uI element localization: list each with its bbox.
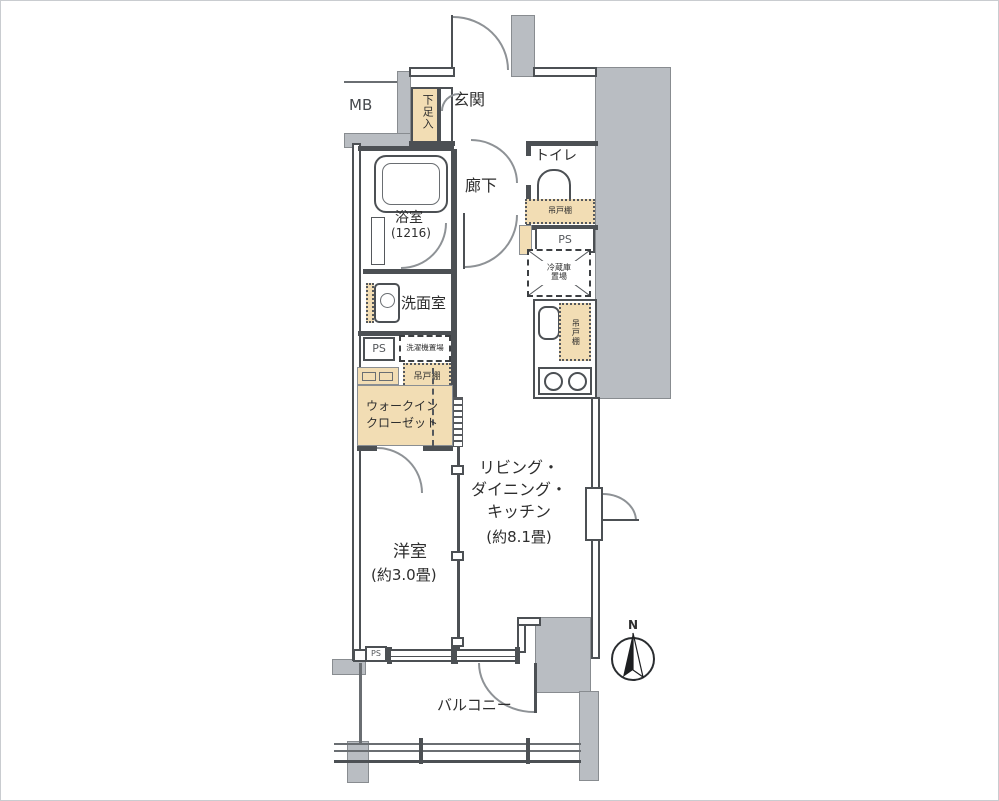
- ldk-size-label: (約8.1畳): [471, 529, 567, 546]
- toilet-shelf-box: 吊戸棚: [525, 199, 595, 224]
- wall-bath-top: [358, 146, 454, 151]
- compass-needle-icon: [607, 619, 659, 685]
- wic-label-line1: ウォークイン: [366, 398, 438, 415]
- balcony-railing-post: [526, 738, 530, 764]
- western-room-size-label: (約3.0畳): [371, 567, 463, 585]
- western-room-label: 洋室: [393, 543, 451, 563]
- shoe-storage-box: 下足入: [411, 87, 439, 149]
- washer-place-box: 洗濯機置場: [399, 335, 451, 362]
- wall-top-right: [533, 67, 597, 77]
- washroom-label: 洗面室: [401, 295, 463, 313]
- floorplan-canvas: MB 玄関 下足入 廊下 トイレ 吊戸棚 PS: [0, 0, 999, 801]
- wic-label-line2: クローゼット: [366, 415, 438, 432]
- kitchen-shelf-box: 吊戸棚: [559, 303, 591, 361]
- balcony-label: バルコニー: [437, 697, 521, 713]
- balcony-left-wall-line: [359, 663, 362, 743]
- entrance-label: 玄関: [453, 91, 509, 111]
- wall-step-horizontal: [517, 617, 541, 626]
- pipe-space-left-label: PS: [372, 343, 386, 355]
- western-room-window: [391, 649, 453, 662]
- pipe-space-bottom-label: PS: [371, 650, 381, 659]
- stove-burner-icon: [568, 372, 587, 391]
- ldk-label-block: リビング・ ダイニング・ キッチン (約8.1畳): [471, 457, 567, 549]
- window-post: [515, 647, 520, 664]
- ldk-label-line1: リビング・: [471, 457, 567, 479]
- service-door-swing-arc: [603, 493, 637, 521]
- pipe-space-left-box: PS: [363, 337, 395, 361]
- ldk-window: [457, 649, 517, 662]
- shoe-storage-label: 下足入: [421, 94, 433, 130]
- genkan-hall-swing-arc: [471, 139, 518, 183]
- washstand-side: [366, 283, 374, 323]
- kitchen-shelf-label: 吊戸棚: [571, 319, 580, 346]
- fridge-place-box: 冷蔵庫 置場: [527, 249, 591, 297]
- wall-right-lower: [591, 539, 600, 659]
- bathtub-inner: [382, 163, 440, 205]
- ldk-label-line2: ダイニング・: [471, 479, 567, 501]
- bath-door-swing-arc: [401, 223, 447, 269]
- ldk-label-line3: キッチン: [471, 501, 567, 523]
- walk-in-closet-area: ウォークイン クローゼット: [357, 385, 453, 446]
- washstand-bowl: [380, 293, 395, 308]
- stove-box: [538, 367, 592, 395]
- balcony-railing-line: [334, 750, 581, 752]
- compass-north-icon: N: [607, 619, 659, 685]
- fridge-label-bg: 冷蔵庫 置場: [541, 261, 577, 285]
- wic-upper-cabinet: [357, 367, 399, 385]
- pipe-space-right-label: PS: [558, 234, 572, 246]
- bath-counter: [371, 217, 385, 265]
- laundry-shelf-label: 吊戸棚: [413, 373, 440, 383]
- concrete-bottom-right-chunk: [535, 617, 591, 693]
- service-door-box: [585, 487, 603, 541]
- balcony-door-leaf: [534, 663, 537, 713]
- concrete-entry-column: [511, 15, 535, 77]
- sliding-partition-node: [451, 637, 464, 647]
- balcony-railing-post: [419, 738, 423, 764]
- concrete-mb-right: [397, 71, 411, 137]
- wic-cabinet-cell: [379, 372, 393, 381]
- toilet-shelf-label: 吊戸棚: [548, 207, 572, 216]
- stove-burner-icon: [544, 372, 563, 391]
- concrete-right-band: [595, 67, 671, 399]
- bathtub-icon: [374, 155, 448, 213]
- wall-toilet-left-a: [526, 146, 531, 156]
- washer-place-label: 洗濯機置場: [406, 344, 444, 352]
- toilet-label: トイレ: [535, 149, 593, 167]
- concrete-balcony-right: [579, 691, 599, 781]
- service-door-leaf: [603, 519, 639, 521]
- wall-toilet-top: [526, 141, 598, 146]
- sliding-partition-node: [451, 551, 464, 561]
- partition-shelf-hatch: [453, 397, 463, 447]
- wic-cabinet-cell: [362, 372, 376, 381]
- wall-top-left: [409, 67, 455, 77]
- sliding-partition-node: [451, 465, 464, 475]
- mb-top-wall-line: [344, 81, 399, 83]
- washstand-sink-icon: [374, 283, 400, 323]
- wall-right-upper: [591, 397, 600, 489]
- balcony-railing-line: [334, 743, 581, 745]
- meter-box-label: MB: [349, 97, 393, 115]
- balcony-railing-line: [334, 760, 581, 763]
- entry-door-swing-arc: [453, 16, 509, 70]
- ldk-door-swing-arc: [465, 215, 518, 268]
- fridge-label-line2: 置場: [547, 273, 571, 282]
- wall-bath-washroom-divider: [363, 269, 451, 274]
- wic-door-swing-arc: [377, 447, 423, 493]
- pipe-space-bottom-box: PS: [365, 646, 387, 662]
- kitchen-sink-icon: [538, 306, 560, 340]
